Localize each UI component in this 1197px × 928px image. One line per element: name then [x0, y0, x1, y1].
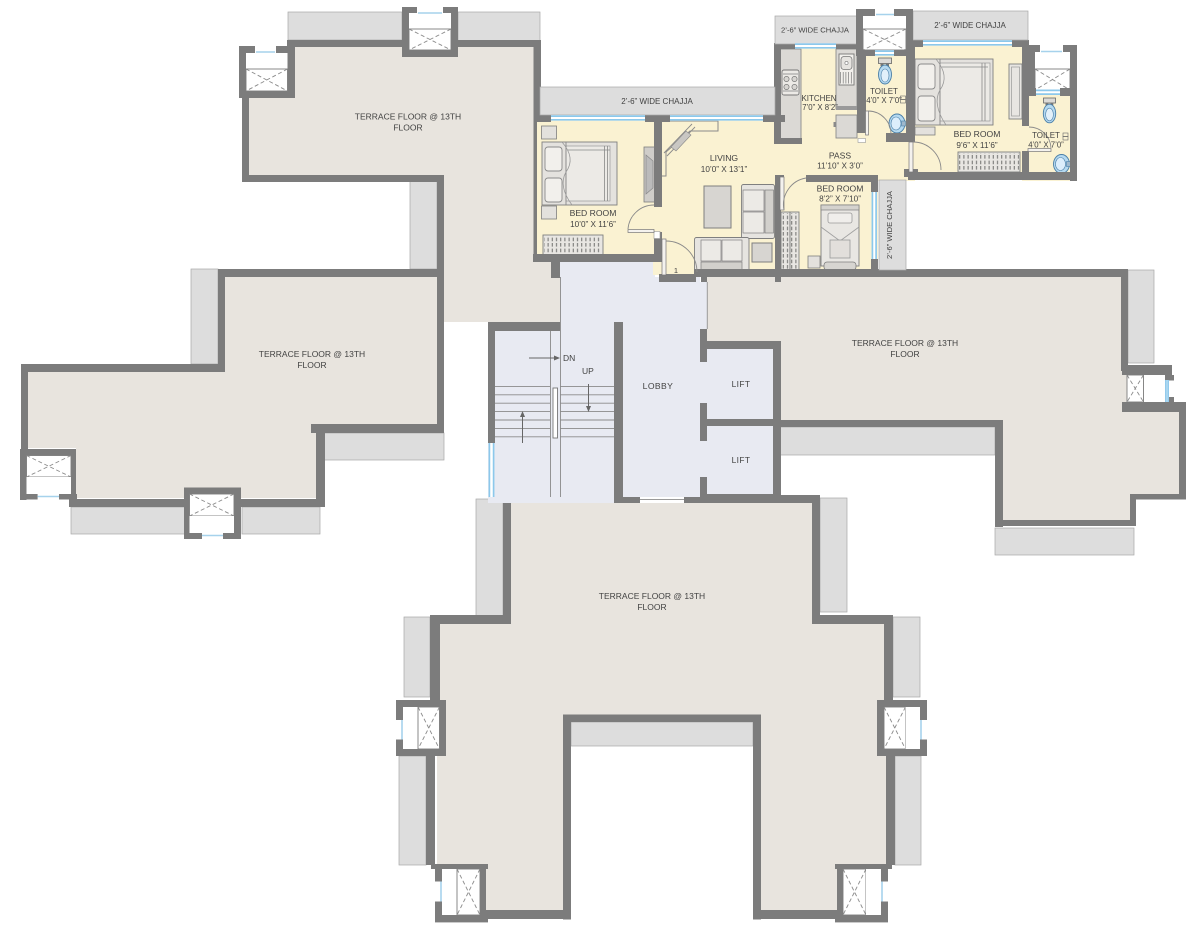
svg-text:7’0” X 8’2”: 7’0” X 8’2” [802, 103, 838, 112]
svg-text:TERRACE FLOOR @ 13TH: TERRACE FLOOR @ 13TH [259, 349, 365, 359]
svg-text:11’10” X 3’0”: 11’10” X 3’0” [817, 162, 863, 171]
svg-text:TOILET: TOILET [1032, 131, 1060, 140]
svg-text:TERRACE FLOOR @ 13TH: TERRACE FLOOR @ 13TH [355, 112, 461, 122]
svg-text:LOBBY: LOBBY [643, 381, 674, 391]
svg-text:FLOOR: FLOOR [890, 349, 919, 359]
svg-text:FLOOR: FLOOR [297, 360, 326, 370]
svg-text:1: 1 [674, 266, 678, 275]
svg-text:2’-6” WIDE CHAJJA: 2’-6” WIDE CHAJJA [885, 190, 894, 259]
svg-text:UP: UP [582, 366, 594, 376]
svg-text:BED ROOM: BED ROOM [817, 184, 864, 194]
svg-text:LIFT: LIFT [732, 379, 751, 389]
svg-text:KITCHEN: KITCHEN [801, 94, 836, 103]
svg-text:TOILET: TOILET [870, 87, 898, 96]
svg-text:FLOOR: FLOOR [637, 602, 666, 612]
svg-text:BED ROOM: BED ROOM [570, 208, 617, 218]
svg-text:8’2” X 7’10”: 8’2” X 7’10” [819, 195, 861, 204]
svg-text:2’-6” WIDE CHAJJA: 2’-6” WIDE CHAJJA [621, 97, 693, 106]
svg-text:10’0” X 11’6”: 10’0” X 11’6” [570, 220, 616, 229]
svg-text:PASS: PASS [829, 151, 852, 161]
svg-text:BED ROOM: BED ROOM [954, 129, 1001, 139]
svg-text:4’0” X 7’0”: 4’0” X 7’0” [866, 96, 902, 105]
svg-text:TERRACE FLOOR @ 13TH: TERRACE FLOOR @ 13TH [852, 338, 958, 348]
svg-text:TERRACE FLOOR @ 13TH: TERRACE FLOOR @ 13TH [599, 591, 705, 601]
svg-text:DN: DN [563, 353, 575, 363]
svg-text:LIVING: LIVING [710, 153, 738, 163]
svg-text:LIFT: LIFT [732, 455, 751, 465]
svg-text:FLOOR: FLOOR [393, 123, 422, 133]
svg-text:9’6” X 11’6”: 9’6” X 11’6” [956, 141, 998, 150]
svg-text:10’0” X 13’1”: 10’0” X 13’1” [701, 165, 748, 174]
svg-text:2’-6” WIDE CHAJJA: 2’-6” WIDE CHAJJA [781, 26, 850, 35]
svg-text:4’0” X 7’0”: 4’0” X 7’0” [1028, 141, 1064, 150]
svg-text:2’-6” WIDE CHAJJA: 2’-6” WIDE CHAJJA [934, 21, 1006, 30]
